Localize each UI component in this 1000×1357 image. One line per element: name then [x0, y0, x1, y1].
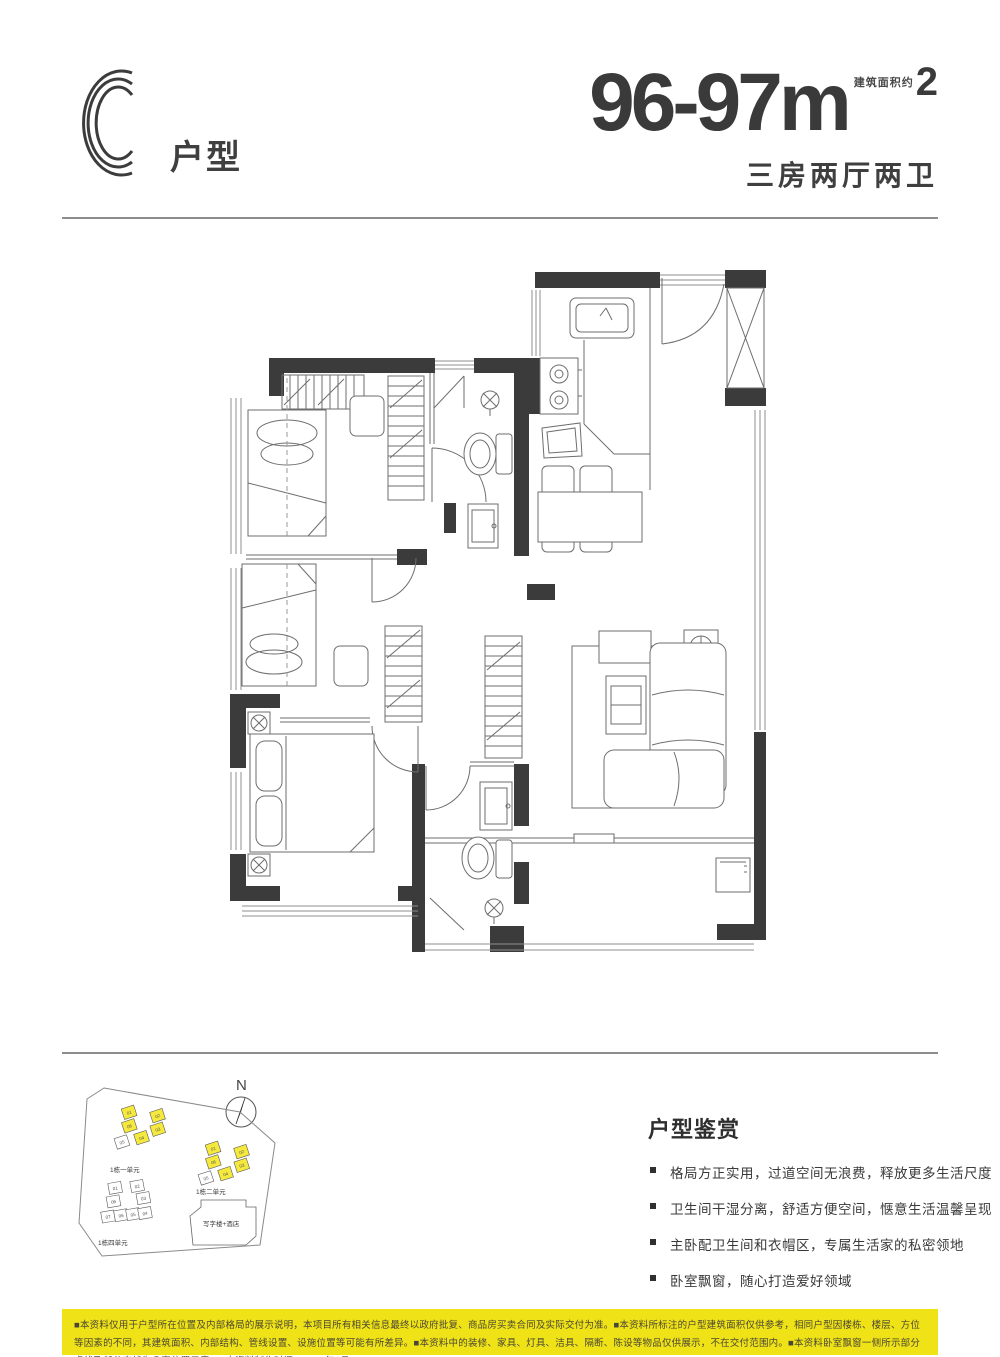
divider-line-top [62, 217, 938, 219]
bathroom1-fixtures [464, 391, 512, 548]
toilet-2 [462, 837, 512, 879]
sink-1 [468, 504, 498, 548]
living-room-furniture [572, 630, 726, 808]
bedside-table-1 [350, 396, 384, 436]
dining-table [538, 492, 642, 542]
bedroom2-furniture [248, 375, 384, 536]
building-cluster-2: 01 06 02 03 05 04 [190, 1133, 254, 1187]
area-note: 建筑面积约 [854, 74, 914, 90]
building-cluster-3: 01 02 06 03 07 06 05 04 [96, 1177, 153, 1226]
sink-2 [480, 782, 512, 830]
bedside-table-2 [334, 646, 368, 686]
area-range: 96-97m [589, 62, 848, 144]
wardrobe-column-3 [485, 636, 522, 758]
bedroom3-furniture [242, 564, 368, 686]
gas-stove [540, 358, 582, 414]
appreciation-bullet: 卧室飘窗，随心打造爱好领域 [648, 1270, 978, 1290]
building-cluster-1: 01 06 02 03 05 04 [106, 1097, 170, 1151]
cluster3-label: 1栋四单元 [98, 1238, 128, 1247]
site-plan: N 01 06 02 03 05 04 1栋一单元 01 06 02 03 05… [70, 1064, 318, 1278]
wardrobe-column-2 [385, 626, 422, 722]
disclaimer-bar: ■本资料仅用于户型所在位置及内部格局的展示说明，本项目所有相关信息最终以政府批复… [62, 1309, 938, 1355]
brochure-page: 户型 96-97m 建筑面积约 2 三房两厅两卫 [0, 0, 1000, 1357]
spec-block: 96-97m 建筑面积约 2 三房两厅两卫 [589, 62, 938, 194]
shower-valve-icon [481, 391, 499, 416]
disclaimer-text: ■本资料仅用于户型所在位置及内部格局的展示说明，本项目所有相关信息最终以政府批复… [74, 1317, 926, 1357]
washing-machine [716, 858, 750, 892]
corner-plant-icon-2 [248, 854, 270, 876]
master-bedroom-furniture [248, 712, 374, 876]
double-bed [250, 734, 374, 852]
type-c-logo-icon [70, 62, 160, 184]
appreciation-bullet: 主卧配卫生间和衣帽区，专属生活家的私密领地 [648, 1234, 978, 1254]
floor-plan-drawing [222, 258, 784, 962]
area-headline: 96-97m 建筑面积约 2 [589, 62, 938, 144]
corner-plant-icon [248, 712, 270, 734]
appreciation-bullet: 卫生间干湿分离，舒适方便空间，惬意生活温馨呈现 [648, 1198, 978, 1218]
toilet-1 [464, 433, 512, 475]
kitchen-furniture [540, 288, 650, 490]
shower-door-line [430, 898, 464, 930]
svg-text:N: N [236, 1077, 247, 1094]
shower-head-icon [485, 899, 503, 924]
tv-console [599, 631, 651, 663]
divider-line-bottom [62, 1052, 938, 1054]
area-superscript: 2 [916, 62, 938, 102]
appreciation-bullet: 格局方正实用，过道空间无浪费，释放更多生活尺度 [648, 1162, 978, 1182]
corner-cabinet [542, 423, 582, 458]
coffee-table [606, 676, 646, 734]
north-compass-icon: N [226, 1077, 256, 1127]
single-bed-2 [242, 564, 316, 686]
cluster1-label: 1栋一单元 [110, 1165, 140, 1174]
kitchen-sink [570, 298, 634, 338]
office-label: 写字楼+酒店 [203, 1219, 240, 1228]
shaft-box [727, 288, 764, 388]
appreciation-title: 户型鉴赏 [648, 1112, 978, 1144]
appreciation-section: 户型鉴赏 格局方正实用，过道空间无浪费，释放更多生活尺度 卫生间干湿分离，舒适方… [648, 1112, 978, 1306]
master-bath-fixtures [430, 782, 512, 930]
cluster2-label: 1栋二单元 [196, 1187, 226, 1196]
dining-set [538, 466, 642, 552]
wardrobe-column-1 [388, 376, 424, 500]
type-label: 户型 [170, 130, 242, 179]
layout-description: 三房两厅两卫 [589, 154, 938, 194]
